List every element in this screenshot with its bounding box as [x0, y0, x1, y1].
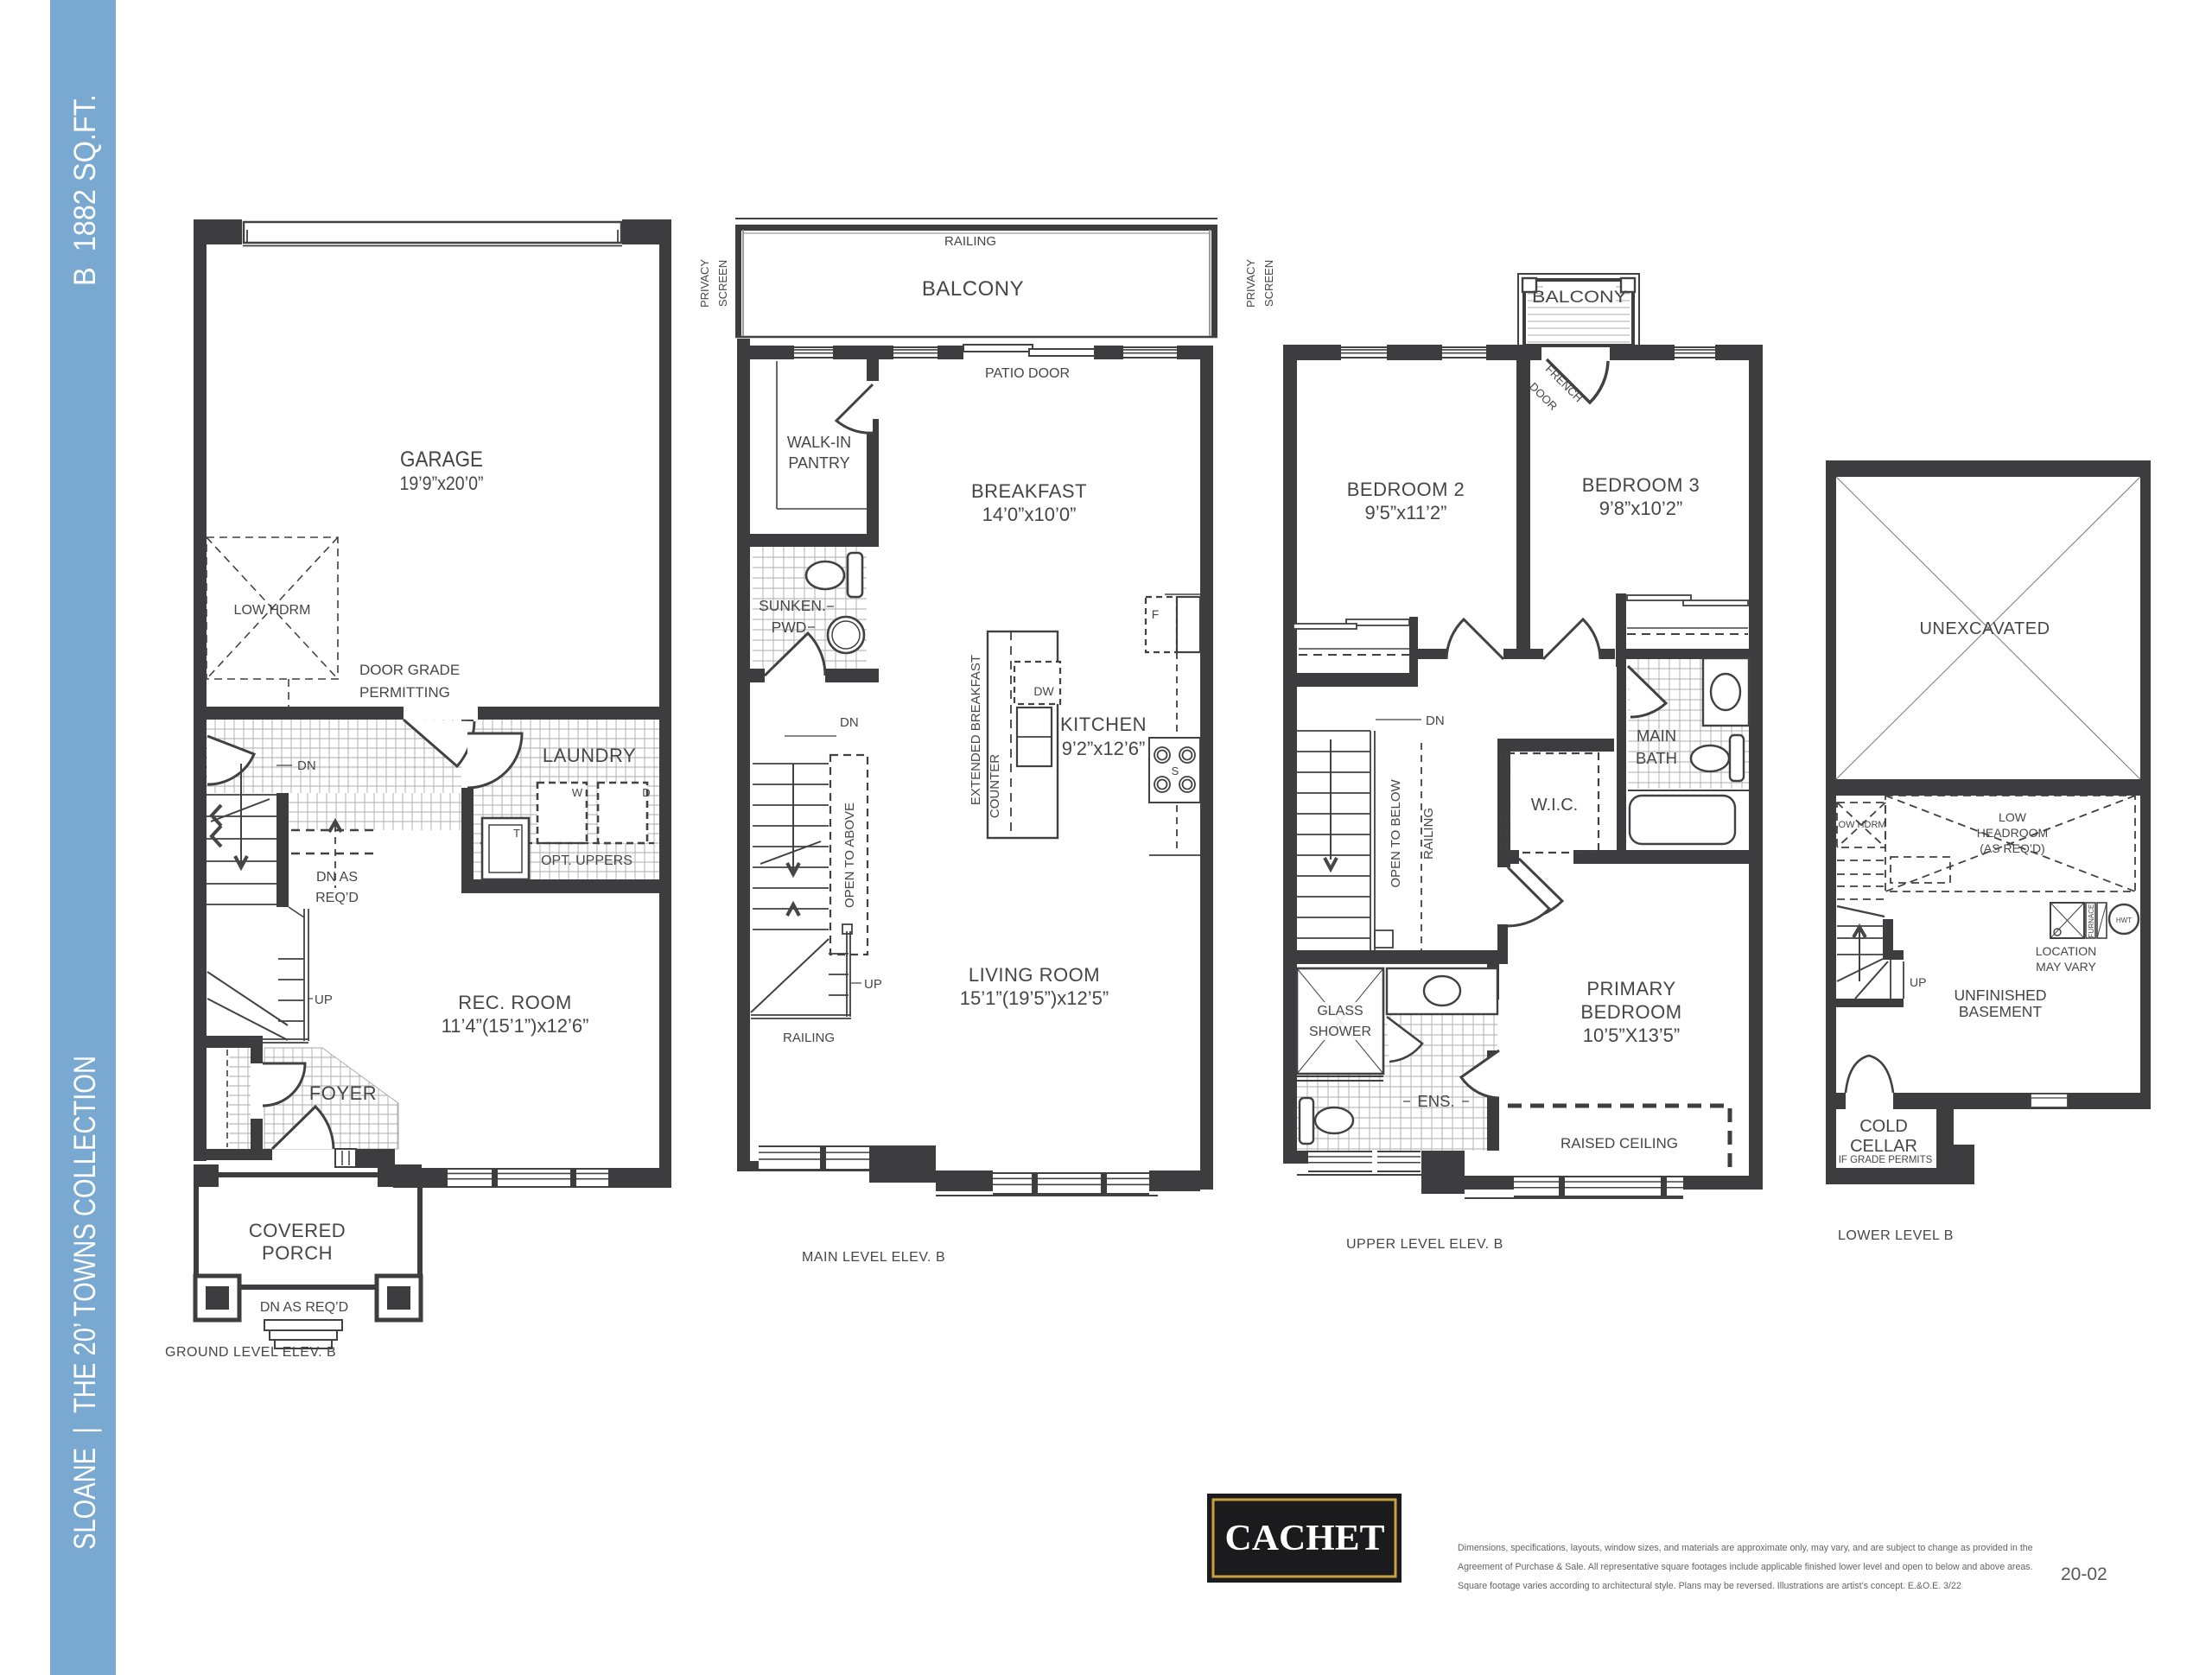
svg-text:LAUNDRY: LAUNDRY [543, 745, 636, 766]
svg-text:D: D [642, 786, 650, 799]
svg-text:IF GRADE PERMITS: IF GRADE PERMITS [1839, 1155, 1933, 1165]
svg-text:Dimensions, specifications, la: Dimensions, specifications, layouts, win… [1458, 1543, 2033, 1553]
svg-text:Square footage varies accordin: Square footage varies according to archi… [1458, 1581, 1961, 1591]
svg-text:LOCATION: LOCATION [2036, 944, 2097, 958]
svg-text:RAILING: RAILING [1421, 808, 1436, 860]
svg-text:9’8”x10’2”: 9’8”x10’2” [1599, 498, 1683, 519]
svg-text:PANTRY: PANTRY [788, 454, 849, 472]
svg-text:COVERED: COVERED [249, 1220, 346, 1241]
svg-text:RAILING: RAILING [944, 234, 996, 249]
svg-text:BASEMENT: BASEMENT [1959, 1003, 2043, 1020]
svg-text:BALCONY: BALCONY [1532, 289, 1627, 307]
svg-text:PRIMARY: PRIMARY [1586, 978, 1675, 999]
svg-text:BATH: BATH [1636, 749, 1677, 767]
svg-text:REC. ROOM: REC. ROOM [458, 992, 572, 1013]
svg-text:PRIVACY: PRIVACY [1244, 259, 1257, 308]
svg-text:COLD: COLD [1859, 1117, 1908, 1136]
svg-text:19’9”x20’0”: 19’9”x20’0” [400, 473, 484, 494]
svg-text:(AS REQ’D): (AS REQ’D) [1980, 841, 2044, 855]
svg-text:PRIVACY: PRIVACY [698, 259, 711, 308]
svg-text:OPEN TO BELOW: OPEN TO BELOW [1389, 779, 1403, 888]
svg-text:PORCH: PORCH [262, 1242, 333, 1264]
svg-text:COUNTER: COUNTER [988, 754, 1002, 818]
svg-text:UPPER LEVEL ELEV. B: UPPER LEVEL ELEV. B [1346, 1237, 1503, 1252]
svg-text:DOOR GRADE: DOOR GRADE [359, 662, 460, 678]
svg-text:DN: DN [1426, 714, 1445, 728]
svg-text:PERMITTING: PERMITTING [359, 684, 450, 701]
svg-text:MAY VARY: MAY VARY [2036, 960, 2096, 974]
svg-text:DN AS REQ’D: DN AS REQ’D [260, 1300, 348, 1315]
svg-text:OPEN TO ABOVE: OPEN TO ABOVE [842, 803, 857, 908]
svg-text:PATIO DOOR: PATIO DOOR [985, 366, 1070, 381]
svg-text:LOW HDRM: LOW HDRM [234, 603, 311, 618]
svg-text:CELLAR: CELLAR [1850, 1137, 1917, 1156]
svg-text:MAIN LEVEL ELEV. B: MAIN LEVEL ELEV. B [802, 1250, 945, 1265]
svg-text:EXTENDED BREAKFAST: EXTENDED BREAKFAST [969, 655, 983, 805]
svg-text:HWT: HWT [2116, 917, 2132, 924]
svg-text:OPT. UPPERS: OPT. UPPERS [541, 853, 632, 868]
svg-text:WALK-IN: WALK-IN [787, 434, 851, 451]
svg-text:SLOANE | THE 20’ TOWNS COLLE: SLOANE | THE 20’ TOWNS COLLECTION [68, 1056, 102, 1550]
svg-text:11’4”(15’1”)x12’6”: 11’4”(15’1”)x12’6” [442, 1015, 589, 1037]
svg-text:BEDROOM: BEDROOM [1580, 1001, 1681, 1023]
svg-text:DN: DN [297, 758, 316, 773]
svg-text:ENS.: ENS. [1417, 1092, 1454, 1110]
svg-text:15’1”(19’5”)x12’5”: 15’1”(19’5”)x12’5” [960, 987, 1109, 1009]
svg-text:REQ’D: REQ’D [315, 891, 359, 905]
svg-text:FOYER: FOYER [309, 1082, 377, 1104]
svg-text:S: S [1172, 765, 1179, 777]
svg-text:BREAKFAST: BREAKFAST [971, 480, 1087, 502]
svg-text:FURNACE: FURNACE [2088, 904, 2095, 938]
svg-text:LOWER LEVEL B: LOWER LEVEL B [1838, 1228, 1954, 1243]
svg-text:LOW: LOW [1999, 810, 2027, 824]
svg-text:W.I.C.: W.I.C. [1531, 796, 1578, 815]
svg-text:DN: DN [840, 715, 859, 730]
svg-text:RAISED CEILING: RAISED CEILING [1560, 1135, 1678, 1152]
svg-text:BEDROOM 3: BEDROOM 3 [1582, 474, 1700, 496]
svg-text:GARAGE: GARAGE [400, 447, 483, 472]
svg-text:BALCONY: BALCONY [922, 277, 1024, 301]
svg-text:GLASS: GLASS [1317, 1004, 1363, 1018]
svg-text:W: W [572, 786, 583, 799]
svg-text:LOW HDRM: LOW HDRM [1833, 820, 1885, 830]
svg-text:RAILING: RAILING [783, 1031, 835, 1045]
svg-text:UNEXCAVATED: UNEXCAVATED [1919, 619, 2050, 638]
svg-text:UP: UP [864, 977, 882, 992]
svg-text:20-02: 20-02 [2061, 1564, 2107, 1584]
svg-text:UNFINISHED: UNFINISHED [1955, 987, 2047, 1004]
svg-text:PWD: PWD [772, 619, 807, 636]
svg-text:UP: UP [1910, 975, 1926, 989]
svg-text:CACHET: CACHET [1225, 1519, 1385, 1558]
svg-text:DW: DW [1033, 684, 1054, 698]
svg-text:SCREEN: SCREEN [716, 260, 729, 307]
svg-text:B 1882 SQ.FT.: B 1882 SQ.FT. [68, 94, 102, 286]
svg-text:9’2”x12’6”: 9’2”x12’6” [1062, 738, 1146, 759]
svg-text:Agreement of Purchase & Sale.: Agreement of Purchase & Sale. All repres… [1458, 1562, 2032, 1572]
svg-text:T: T [513, 827, 520, 840]
svg-text:9’5”x11’2”: 9’5”x11’2” [1365, 502, 1447, 523]
svg-text:GROUND LEVEL ELEV. B: GROUND LEVEL ELEV. B [165, 1345, 336, 1360]
svg-text:14’0”x10’0”: 14’0”x10’0” [982, 504, 1077, 525]
svg-text:KITCHEN: KITCHEN [1060, 714, 1147, 735]
svg-text:BEDROOM 2: BEDROOM 2 [1347, 479, 1465, 500]
svg-text:SHOWER: SHOWER [1309, 1025, 1371, 1039]
svg-text:10’5”X13’5”: 10’5”X13’5” [1583, 1025, 1681, 1046]
svg-text:HEADROOM: HEADROOM [1977, 826, 2048, 840]
svg-text:MAIN: MAIN [1637, 726, 1676, 745]
svg-text:SUNKEN.: SUNKEN. [759, 597, 826, 614]
svg-text:SCREEN: SCREEN [1262, 260, 1275, 307]
svg-text:LIVING ROOM: LIVING ROOM [969, 964, 1100, 986]
svg-text:F: F [1152, 607, 1160, 621]
svg-text:DN AS: DN AS [316, 870, 358, 885]
svg-text:UP: UP [315, 993, 333, 1007]
